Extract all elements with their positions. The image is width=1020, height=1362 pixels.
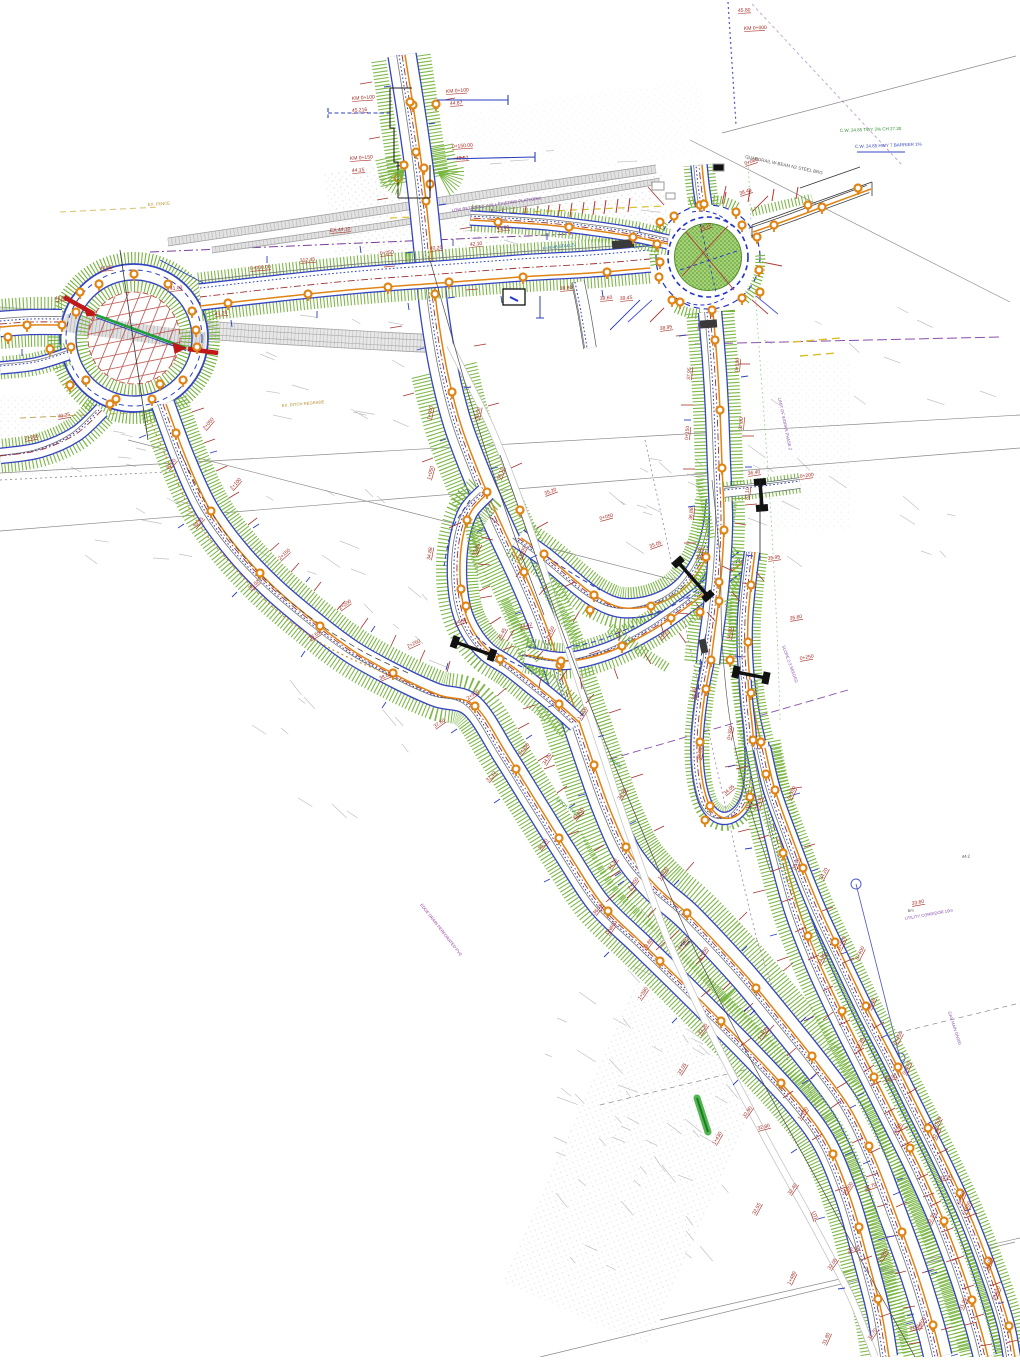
svg-text:bm: bm — [908, 908, 915, 913]
svg-text:44.2: 44.2 — [962, 853, 971, 859]
